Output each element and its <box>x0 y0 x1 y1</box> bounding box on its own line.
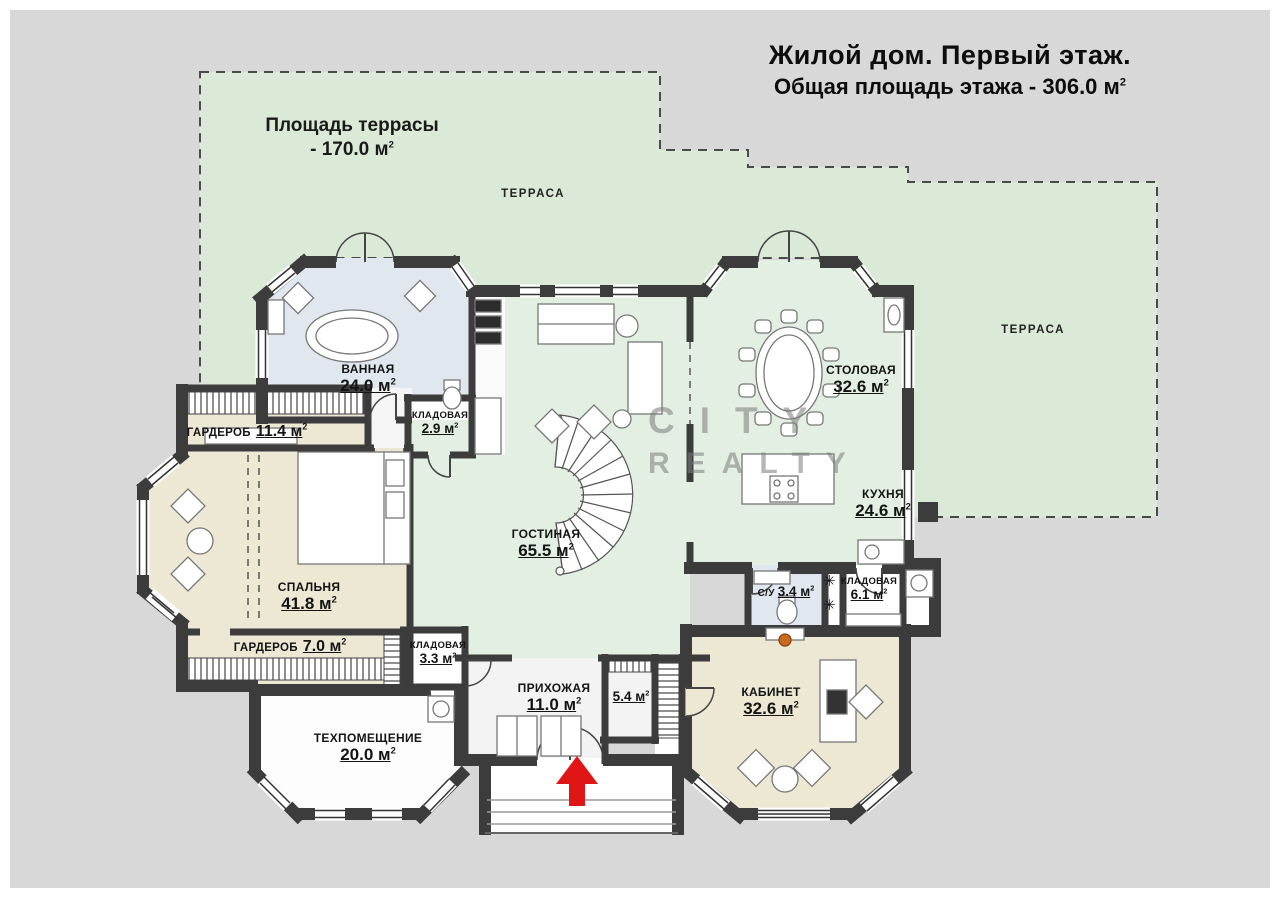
room-label-5-4: 5.4 м2 <box>613 689 650 705</box>
room-label-bedroom: СПАЛЬНЯ 41.8 м2 <box>278 580 341 614</box>
terrace-label-top: ТЕРРАСА <box>501 188 565 200</box>
watermark-word-city: CITY <box>648 400 832 442</box>
room-label-kitchen: КУХНЯ 24.6 м2 <box>855 487 911 521</box>
plan-title-line2: Общая площадь этажа - 306.0 м2 <box>700 74 1200 100</box>
room-label-storage-3: КЛАДОВАЯ 6.1 м2 <box>841 576 897 603</box>
room-label-dining: СТОЛОВАЯ 32.6 м2 <box>826 363 896 397</box>
room-label-bathroom: ВАННАЯ 24.0 м2 <box>340 362 396 396</box>
room-label-wc: С/У3.4 м2 <box>758 583 815 602</box>
room-label-wardrobe-1: ГАРДЕРОБ11.4 м2 <box>187 422 308 442</box>
room-label-storage-2: КЛАДОВАЯ 3.3 м2 <box>410 640 466 667</box>
vent-icon: ✳ <box>823 574 836 589</box>
plan-title: Жилой дом. Первый этаж. Общая площадь эт… <box>700 40 1200 100</box>
floor-plan-page: Жилой дом. Первый этаж. Общая площадь эт… <box>0 0 1280 898</box>
terrace-label-right: ТЕРРАСА <box>1001 324 1065 336</box>
floor-plan-svg <box>0 0 1280 898</box>
room-label-wardrobe-2: ГАРДЕРОБ7.0 м2 <box>234 637 346 657</box>
room-label-storage-1: КЛАДОВАЯ 2.9 м2 <box>412 410 468 437</box>
room-label-hallway: ПРИХОЖАЯ 11.0 м2 <box>518 681 591 715</box>
room-label-living: ГОСТИНАЯ 65.5 м2 <box>512 527 581 561</box>
plan-title-line1: Жилой дом. Первый этаж. <box>700 40 1200 71</box>
vent-icon: ✳ <box>823 598 836 613</box>
terrace-area-note: Площадь террасы - 170.0 м2 <box>222 114 482 162</box>
room-label-cabinet: КАБИНЕТ 32.6 м2 <box>741 685 800 719</box>
watermark-word-realty: REALTY <box>648 447 862 481</box>
room-label-tech: ТЕХПОМЕЩЕНИЕ 20.0 м2 <box>314 731 422 765</box>
